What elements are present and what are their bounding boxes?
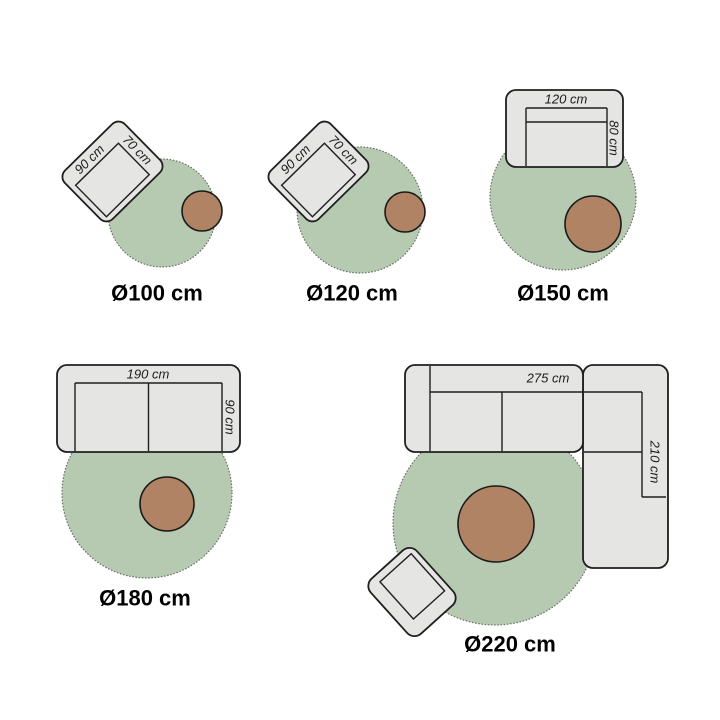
diagram-rug-100: 90 cm 70 cm Ø100 cm — [59, 118, 222, 306]
diagram-rug-180: 190 cm 90 cm Ø180 cm — [57, 365, 240, 611]
dimension-label-depth: 210 cm — [648, 440, 663, 484]
rug-size-guide-svg: 90 cm 70 cm Ø100 cm 90 cm 70 cm Ø120 cm … — [0, 0, 720, 720]
rug-size-label: Ø220 cm — [464, 632, 556, 657]
diagram-rug-120: 90 cm 70 cm Ø120 cm — [265, 118, 425, 306]
side-table — [182, 191, 222, 231]
dimension-label-depth: 90 cm — [223, 399, 238, 435]
coffee-table — [458, 486, 534, 562]
dimension-label-width: 120 cm — [545, 92, 588, 107]
rug-size-label: Ø100 cm — [111, 281, 203, 306]
dimension-label-width: 190 cm — [127, 367, 170, 382]
diagram-rug-220: 275 cm 210 cm Ø220 cm — [364, 365, 668, 657]
loveseat-sofa: 120 cm 80 cm — [506, 90, 623, 167]
dimension-label-depth: 80 cm — [607, 120, 622, 156]
rug-size-label: Ø180 cm — [99, 586, 191, 611]
dimension-label-width: 275 cm — [526, 371, 570, 386]
coffee-table — [140, 477, 194, 531]
coffee-table — [565, 196, 621, 252]
rug-size-label: Ø150 cm — [517, 281, 609, 306]
rug-size-label: Ø120 cm — [306, 281, 398, 306]
two-seat-sofa: 190 cm 90 cm — [57, 365, 240, 452]
rug-size-guide: 90 cm 70 cm Ø100 cm 90 cm 70 cm Ø120 cm … — [0, 0, 720, 720]
diagram-rug-150: 120 cm 80 cm Ø150 cm — [490, 90, 636, 306]
side-table — [385, 192, 425, 232]
